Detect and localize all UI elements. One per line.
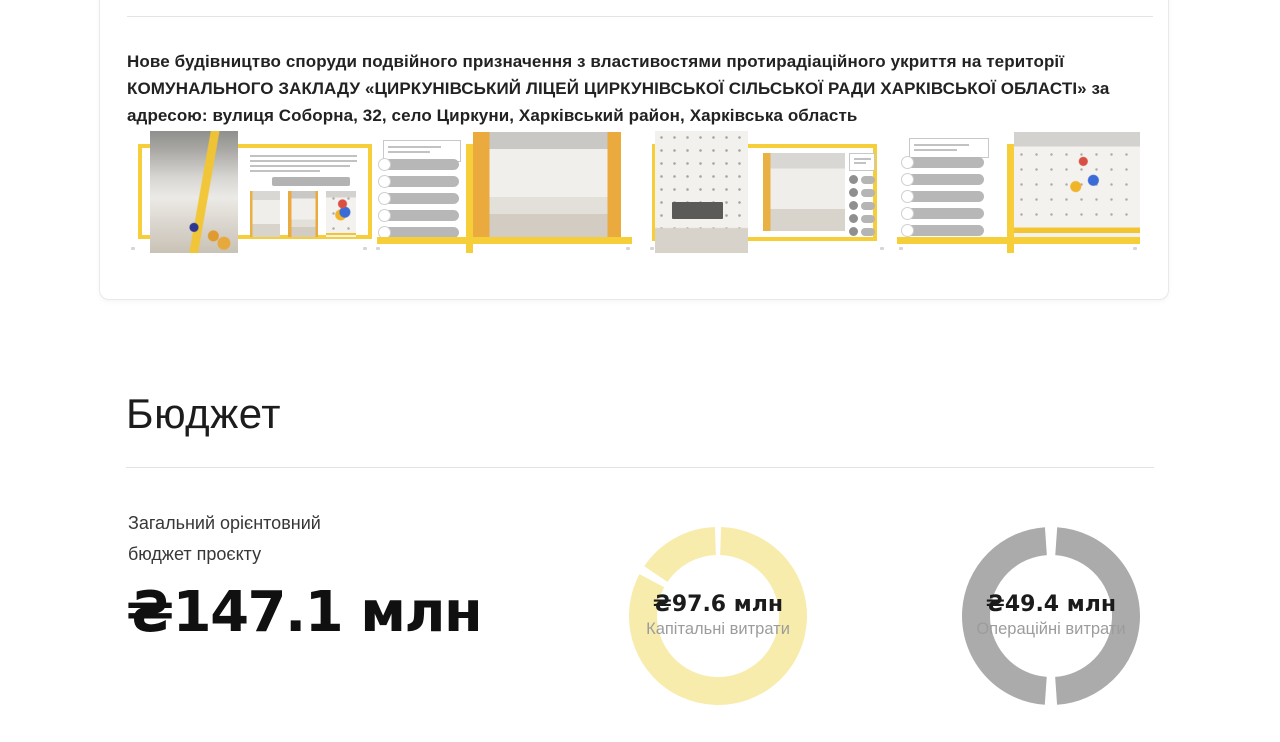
slide-icon-list-item	[861, 188, 875, 196]
budget-total-label-line2: бюджет проєкту	[128, 539, 321, 570]
slide-list-item	[906, 225, 984, 236]
slide-text-box	[849, 153, 875, 171]
operational-expenses-value: ₴49.4 млн	[986, 592, 1116, 618]
operational-expenses-donut: ₴49.4 млн Операційні витрати	[956, 521, 1146, 711]
slide-icon-list-item	[861, 201, 875, 209]
project-gallery-thumbnail-corridor[interactable]	[127, 129, 374, 261]
slide-list-item	[383, 159, 459, 170]
slide-list-item	[383, 193, 459, 204]
capital-expenses-label: Капітальні витрати	[646, 618, 790, 641]
slide-list-item	[906, 157, 984, 168]
slide-photo-corridor	[150, 131, 238, 253]
budget-section-heading: Бюджет	[126, 390, 281, 438]
slide-icon-list-item	[861, 214, 875, 222]
capital-expenses-value: ₴97.6 млн	[653, 592, 783, 618]
slide-icon-list-item	[861, 227, 875, 235]
slide-icon-list-item	[861, 175, 875, 183]
capital-expenses-donut: ₴97.6 млн Капітальні витрати	[623, 521, 813, 711]
slide-photo-meeting-room	[473, 132, 621, 237]
budget-total-value: ₴147.1 млн	[126, 580, 481, 645]
budget-total-label: Загальний орієнтовний бюджет проєкту	[128, 508, 321, 570]
slide-header-block	[272, 177, 350, 186]
project-card: Нове будівництво споруди подвійного приз…	[99, 0, 1169, 300]
slide-list-item	[906, 208, 984, 219]
budget-divider	[126, 467, 1154, 468]
slide-photo-classroom-wide	[763, 153, 845, 231]
slide-text-box	[909, 138, 989, 158]
budget-total-label-line1: Загальний орієнтовний	[128, 508, 321, 539]
slide-mini-photo	[250, 191, 280, 237]
slide-list-item	[906, 174, 984, 185]
project-page: Нове будівництво споруди подвійного приз…	[0, 0, 1280, 742]
slide-list-item	[906, 191, 984, 202]
slide-photo-cafeteria	[1014, 132, 1140, 237]
slide-mini-photo	[288, 191, 318, 237]
project-title: Нове будівництво споруди подвійного приз…	[127, 48, 1159, 129]
project-gallery-thumbnail-classroom[interactable]	[652, 129, 890, 261]
slide-list-item	[383, 176, 459, 187]
operational-expenses-label: Операційні витрати	[976, 618, 1125, 641]
project-gallery-thumbnail-meeting-room[interactable]	[376, 129, 641, 261]
slide-mini-photo	[326, 191, 356, 237]
project-gallery-thumbnail-cafeteria[interactable]	[897, 129, 1141, 261]
card-divider	[127, 16, 1153, 17]
slide-photo-classroom	[655, 131, 748, 253]
slide-list-item	[383, 210, 459, 221]
project-gallery	[127, 129, 1141, 261]
